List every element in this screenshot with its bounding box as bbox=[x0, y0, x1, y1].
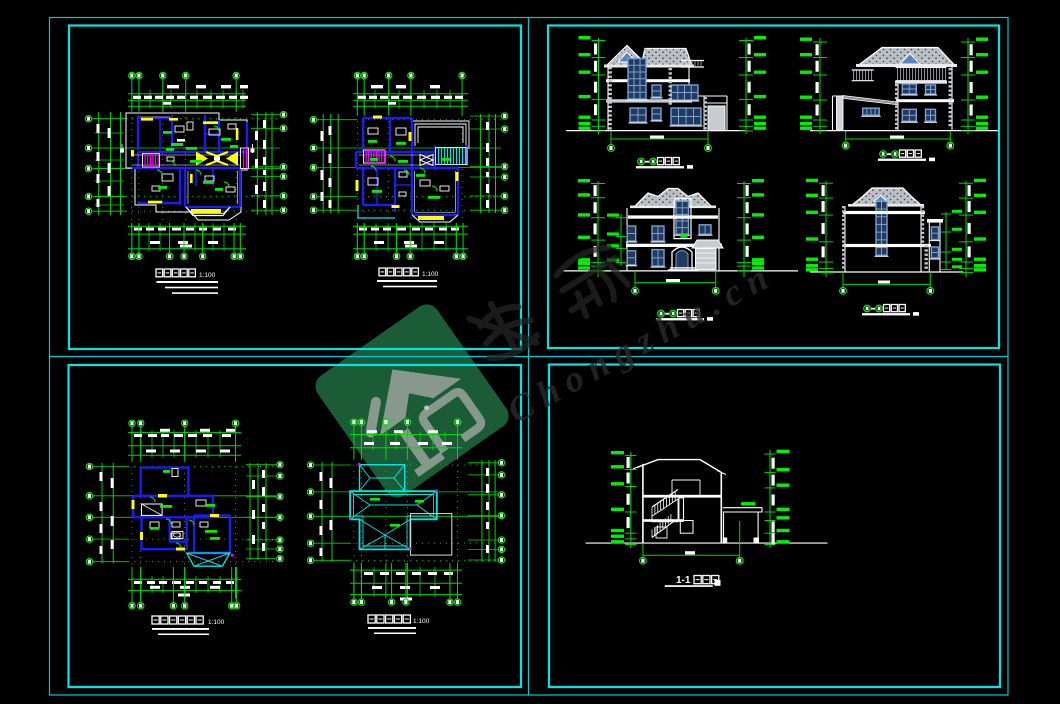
svg-text:1:100: 1:100 bbox=[199, 272, 216, 279]
svg-text:1:100: 1:100 bbox=[413, 618, 430, 625]
svg-text:1:100: 1:100 bbox=[422, 271, 439, 278]
svg-text:1-1: 1-1 bbox=[676, 575, 691, 586]
svg-text:1:100: 1:100 bbox=[208, 619, 225, 626]
